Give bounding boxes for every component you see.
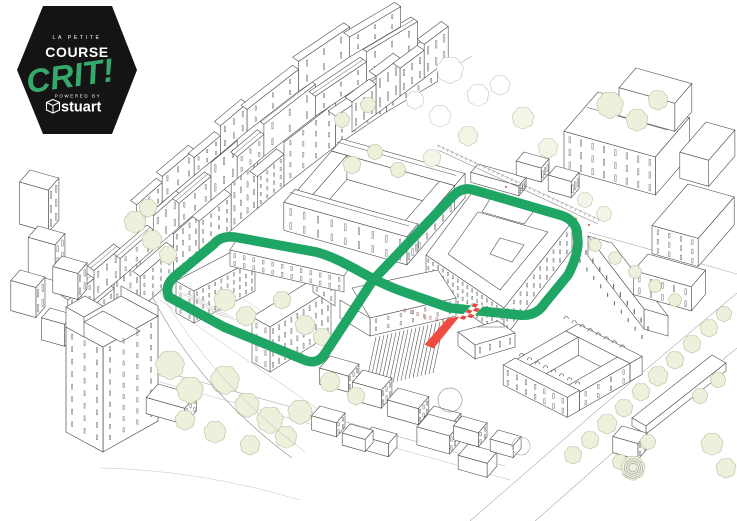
- svg-text:stuart: stuart: [61, 100, 101, 116]
- svg-text:POWERED BY: POWERED BY: [55, 94, 102, 99]
- svg-text:LA PETITE: LA PETITE: [52, 35, 101, 41]
